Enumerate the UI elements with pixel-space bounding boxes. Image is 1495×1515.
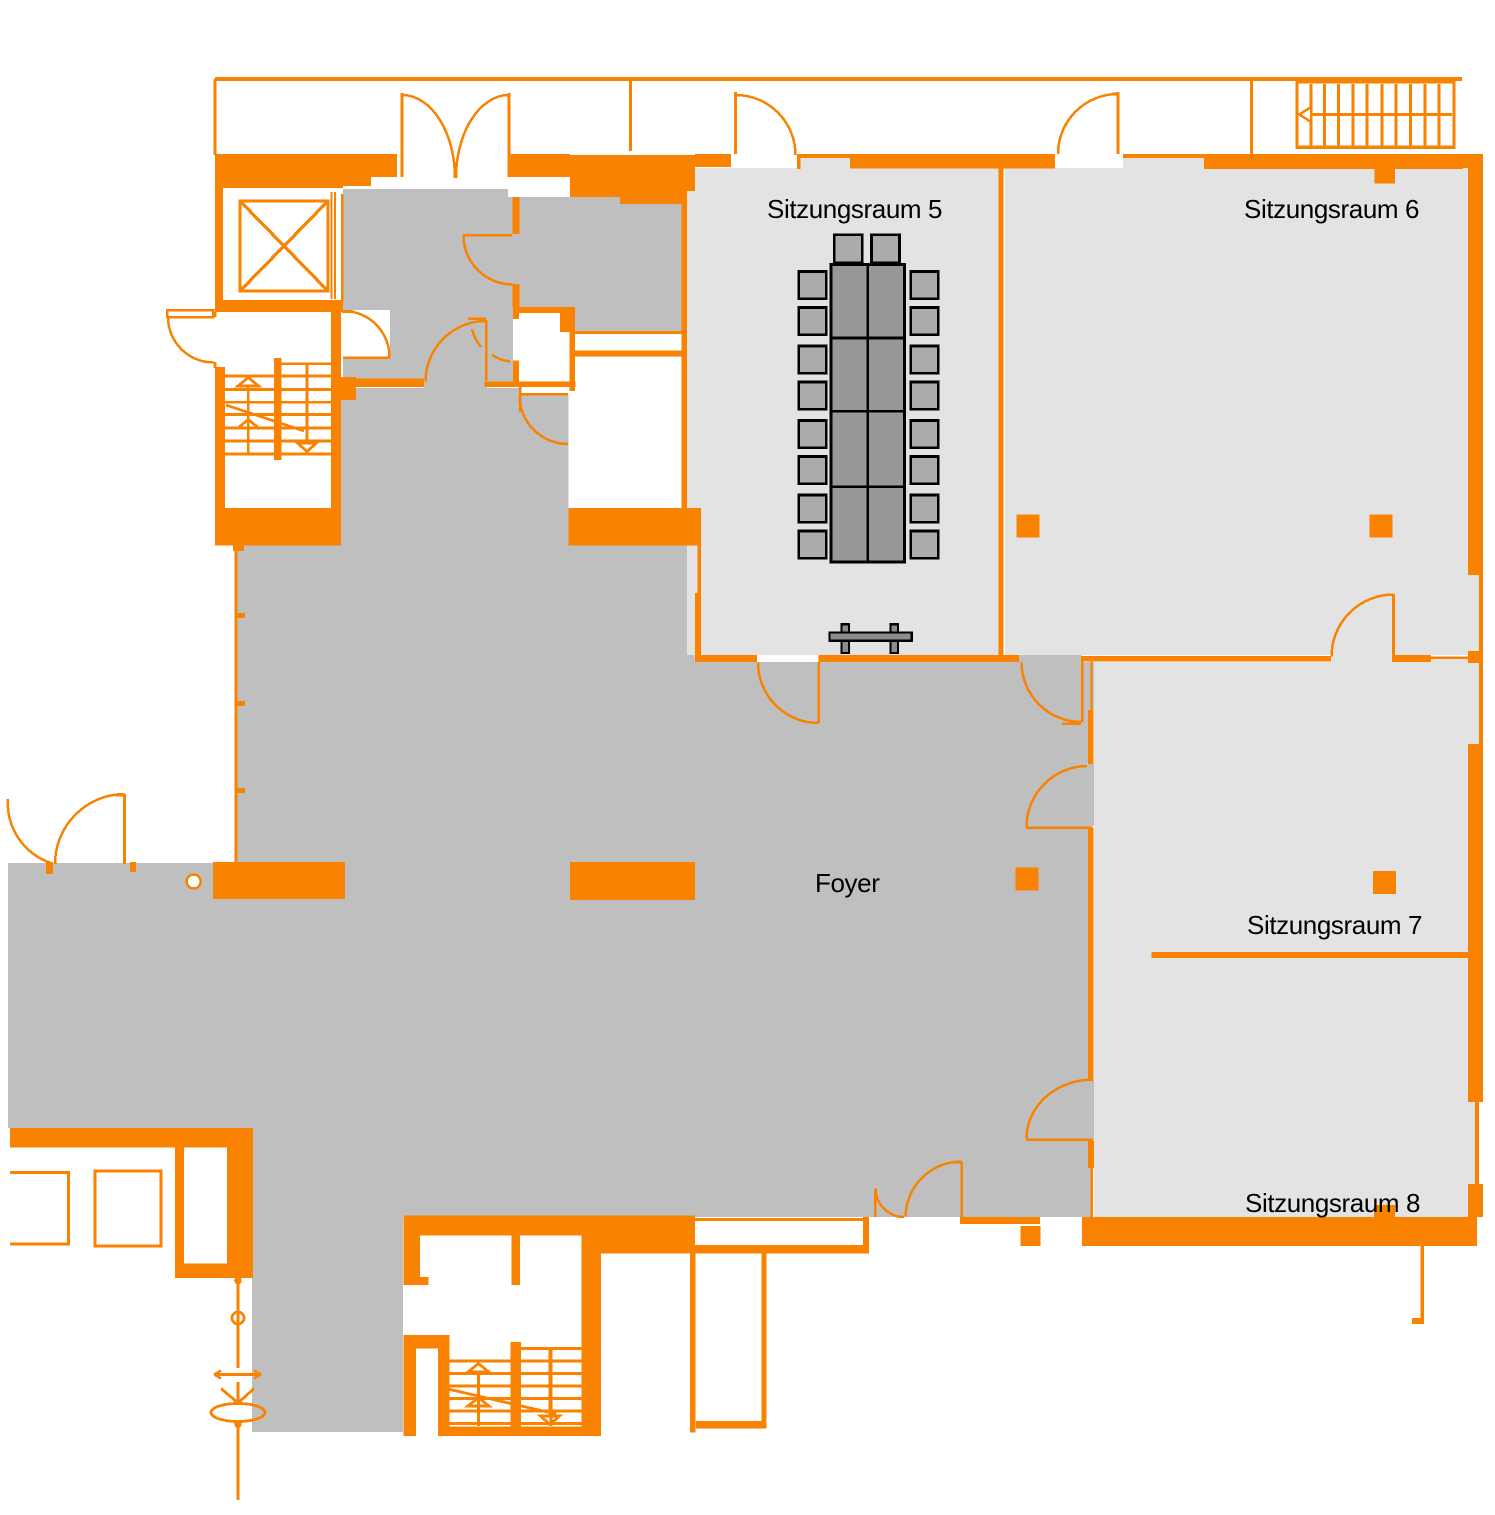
svg-text:Sitzungsraum 7: Sitzungsraum 7 [1247, 910, 1422, 940]
svg-text:Sitzungsraum 5: Sitzungsraum 5 [767, 194, 942, 224]
svg-text:Sitzungsraum 8: Sitzungsraum 8 [1245, 1188, 1420, 1218]
svg-text:Foyer: Foyer [815, 868, 880, 898]
svg-text:Sitzungsraum 6: Sitzungsraum 6 [1244, 194, 1419, 224]
